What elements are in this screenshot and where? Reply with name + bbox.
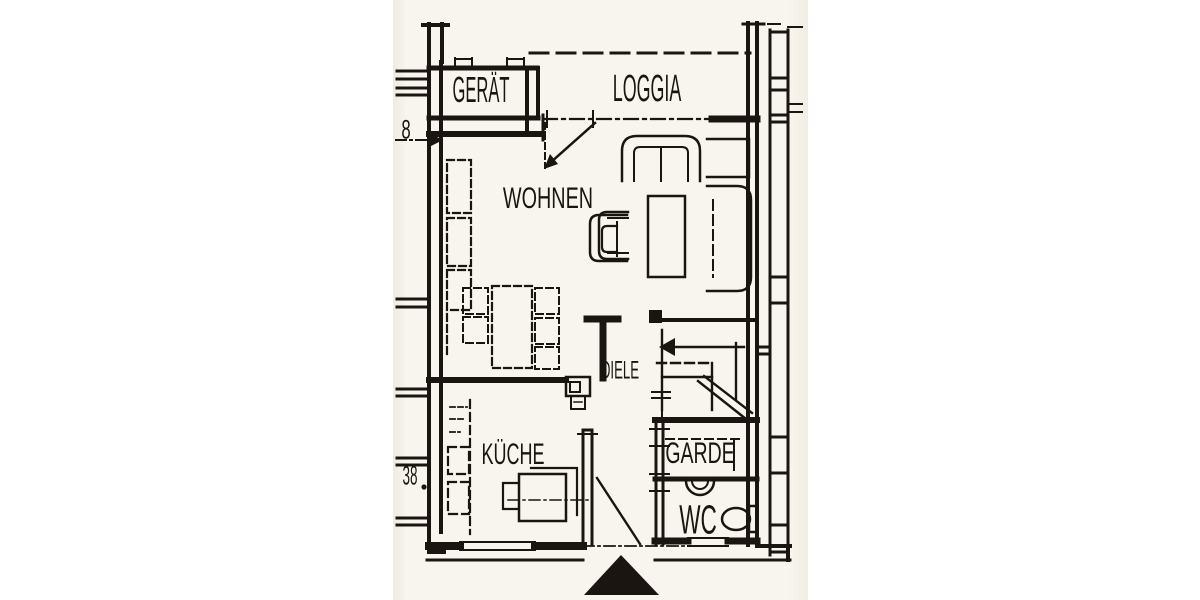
room-label-wohnen: WOHNEN xyxy=(503,184,593,214)
dining-table-icon xyxy=(463,286,559,369)
room-label-garde: GARDE xyxy=(665,439,734,469)
floor-plan-drawing xyxy=(0,0,1200,600)
side-chair-icon xyxy=(707,139,749,177)
room-label-geraet: GERÄT xyxy=(452,72,509,108)
armchair-icon xyxy=(590,215,627,261)
entrance-door-swing xyxy=(597,478,640,544)
room-label-loggia: LOGGIA xyxy=(613,70,681,108)
right-neighbor-wall xyxy=(757,27,802,555)
cabinet-row-icon xyxy=(447,160,471,354)
dimension-mark-lower: 38 xyxy=(402,463,417,490)
bottom-wall xyxy=(427,538,790,560)
duct-icon xyxy=(566,377,590,409)
screenshot-canvas: GERÄT LOGGIA WOHNEN DIELE KÜCHE GARDE WC… xyxy=(0,0,1200,600)
loggia-door-swing xyxy=(544,123,595,169)
room-label-diele: DIELE xyxy=(601,359,639,384)
stairs-icon xyxy=(652,330,752,419)
room-label-kueche: KÜCHE xyxy=(481,440,544,470)
kitchen-table-icon xyxy=(503,468,592,521)
toilet-icon xyxy=(722,506,757,532)
long-sofa-icon xyxy=(707,186,751,291)
dimension-mark-upper: 8 xyxy=(401,117,410,144)
section-marker-arrows xyxy=(396,134,443,490)
room-label-wc: WC xyxy=(679,500,717,541)
sink-icon xyxy=(686,481,714,495)
kitchen-counter-icon xyxy=(448,400,470,534)
coffee-table-icon xyxy=(648,196,685,277)
sofa-icon xyxy=(622,136,700,181)
entrance-arrow-icon xyxy=(584,555,659,595)
